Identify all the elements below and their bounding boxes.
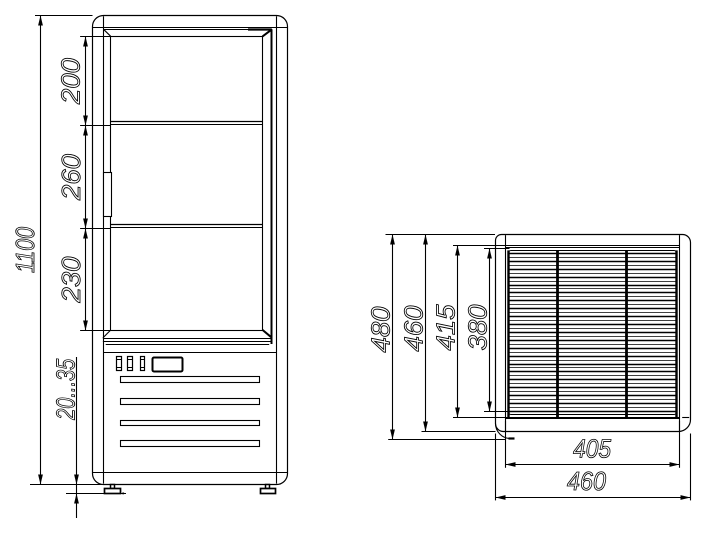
svg-text:200: 200 <box>56 57 86 105</box>
svg-text:20...35: 20...35 <box>50 358 80 420</box>
svg-text:260: 260 <box>56 153 86 201</box>
svg-text:460: 460 <box>399 305 429 352</box>
svg-text:405: 405 <box>573 434 611 464</box>
svg-text:415: 415 <box>431 304 461 351</box>
svg-text:480: 480 <box>366 306 396 353</box>
svg-text:460: 460 <box>567 466 606 496</box>
svg-text:230: 230 <box>56 256 86 304</box>
svg-text:1100: 1100 <box>10 227 40 273</box>
svg-text:380: 380 <box>462 304 492 351</box>
